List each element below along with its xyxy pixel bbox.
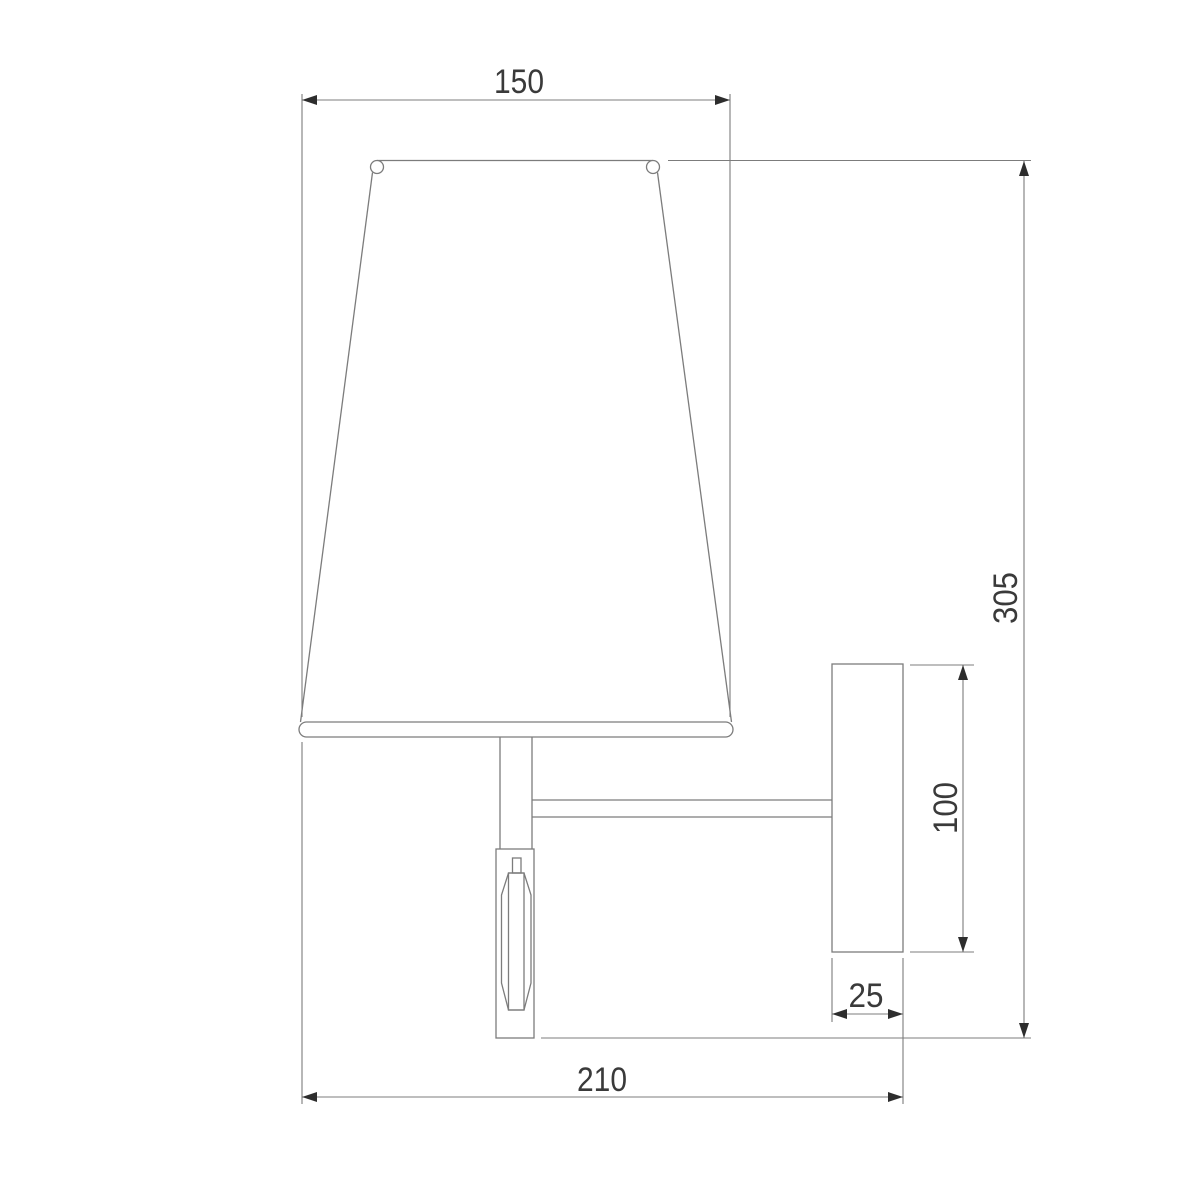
arrowhead-left: [832, 1009, 847, 1019]
dimension-overall-depth: 210: [302, 742, 903, 1104]
shade-left-side: [301, 173, 373, 723]
shade-right-side: [658, 173, 732, 723]
arm: [532, 800, 832, 817]
dimension-label: 100: [927, 782, 965, 834]
drawing-page: 150 305 100 25: [0, 0, 1200, 1200]
shade-bottom-rim: [299, 722, 733, 737]
stem: [500, 737, 532, 849]
arrowhead-top: [958, 665, 968, 680]
dimension-overall-height: 305: [541, 161, 1031, 1039]
dimension-plate-depth: 25: [832, 958, 903, 1104]
arrowhead-top: [1019, 161, 1029, 176]
dimension-label: 25: [849, 977, 884, 1015]
dimension-plate-height: 100: [910, 665, 974, 952]
arrowhead-bottom: [1019, 1023, 1029, 1038]
crystal-pin: [513, 858, 522, 873]
arrowhead-left: [302, 95, 317, 105]
arrowhead-left: [302, 1092, 317, 1102]
wall-plate: [832, 664, 903, 952]
wall-lamp-dimension-drawing: 150 305 100 25: [0, 0, 1200, 1200]
arrowhead-right: [888, 1092, 903, 1102]
crystal-outline: [502, 873, 532, 1010]
crystal-facet: [509, 873, 525, 1010]
shade-top-left-ring: [371, 161, 384, 174]
dimension-label: 150: [494, 63, 544, 101]
switch-housing: [496, 849, 534, 1038]
dimension-label: 210: [577, 1061, 627, 1099]
arrowhead-bottom: [958, 937, 968, 952]
shade-top-right-ring: [647, 161, 660, 174]
arrowhead-right: [888, 1009, 903, 1019]
arrowhead-right: [715, 95, 730, 105]
lampshade: [299, 161, 733, 738]
dimension-label: 305: [987, 572, 1025, 624]
